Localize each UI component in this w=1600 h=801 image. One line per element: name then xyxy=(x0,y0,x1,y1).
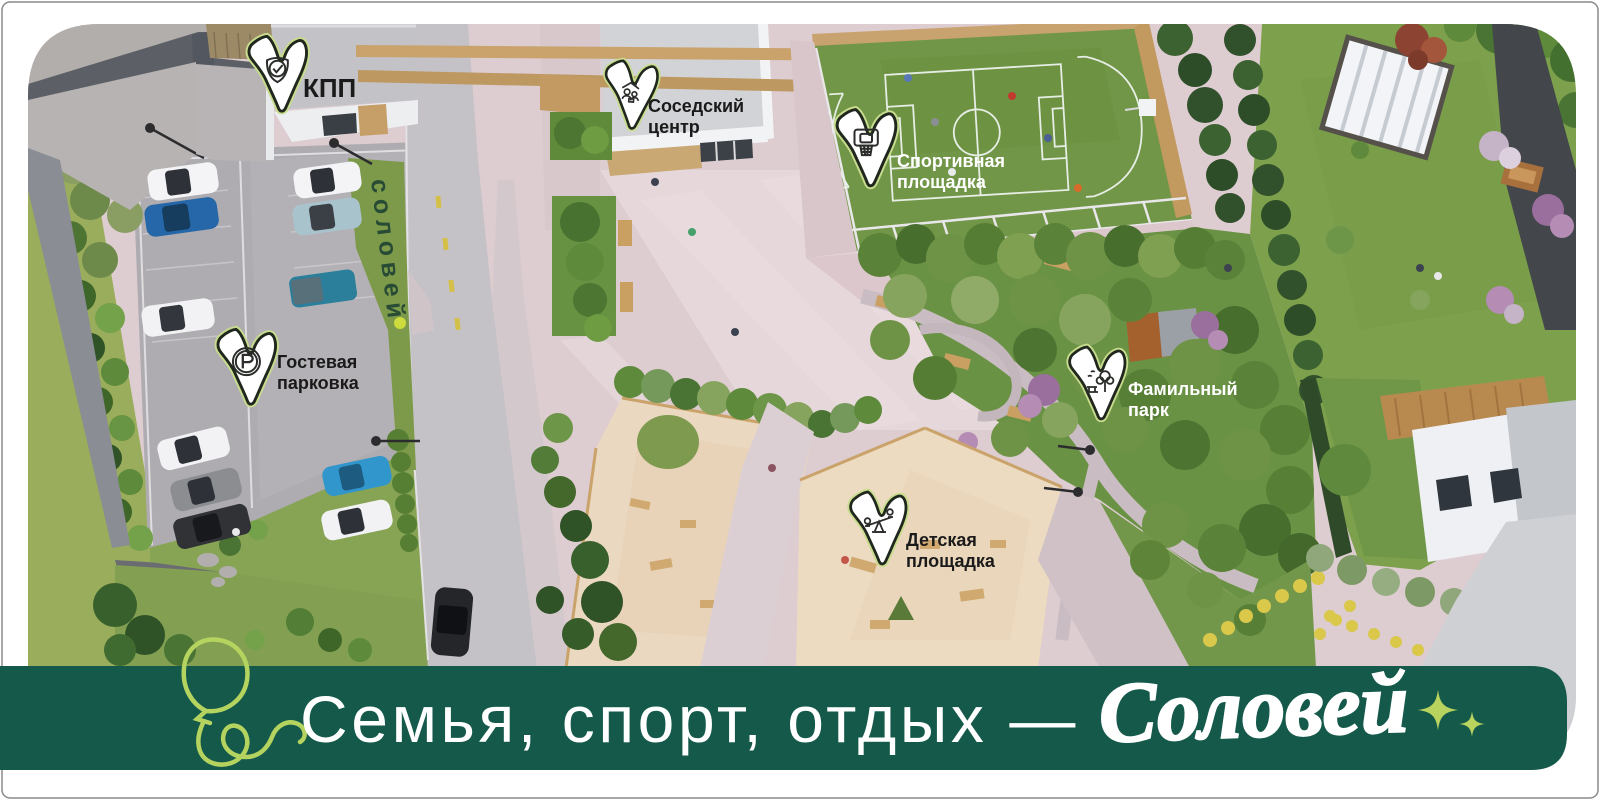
svg-text:парк: парк xyxy=(1128,400,1170,420)
svg-text:парковка: парковка xyxy=(277,373,360,393)
svg-text:Соседский: Соседский xyxy=(648,96,744,116)
svg-text:Гостевая: Гостевая xyxy=(277,352,357,372)
svg-text:КПП: КПП xyxy=(303,73,356,103)
svg-text:центр: центр xyxy=(648,117,700,137)
svg-text:Спортивная: Спортивная xyxy=(897,151,1005,171)
svg-text:Детская: Детская xyxy=(906,530,977,550)
svg-text:площадка: площадка xyxy=(906,551,996,571)
svg-text:площадка: площадка xyxy=(897,172,987,192)
svg-text:Соловей: Соловей xyxy=(1097,654,1409,761)
svg-text:Семья, спорт, отдых —: Семья, спорт, отдых — xyxy=(300,682,1079,756)
svg-text:Фамильный: Фамильный xyxy=(1128,379,1238,399)
